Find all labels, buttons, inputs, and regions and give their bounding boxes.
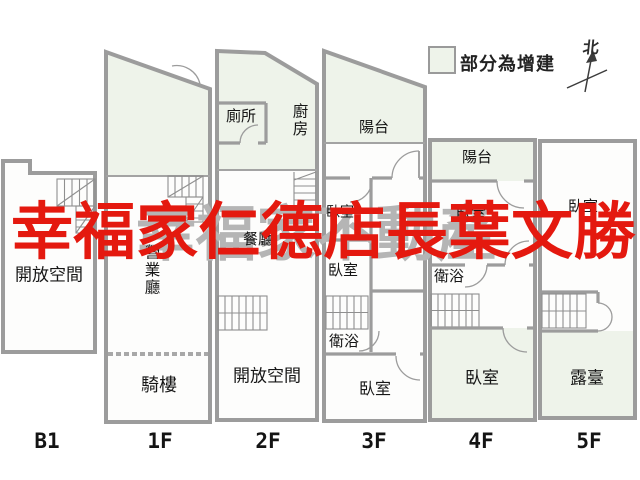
floor-label-5f: 5F [576, 429, 601, 453]
room-label: 騎樓 [141, 376, 177, 396]
room-label: 廚房 [290, 103, 307, 138]
room-label: 陽台 [462, 150, 492, 167]
room-label: 衛浴 [434, 269, 464, 286]
floor-label-b1: B1 [34, 429, 59, 453]
floor-label-3f: 3F [361, 429, 386, 453]
floorplan-canvas: 部分為增建 北 幸福家不動產 幸福家仁德店長葉文勝 開放空間 營業廳 騎樓 廁所… [0, 0, 640, 480]
agent-watermark: 幸福家仁德店長葉文勝 [11, 200, 636, 265]
room-label: 開放空間 [15, 267, 83, 286]
legend-addition-label: 部分為增建 [460, 50, 555, 76]
room-label: 露臺 [570, 370, 604, 389]
floor-label-2f: 2F [255, 429, 280, 453]
legend [429, 47, 455, 73]
room-label: 臥室 [465, 370, 499, 389]
room-label: 衛浴 [329, 334, 359, 351]
floor-label-1f: 1F [147, 429, 172, 453]
north-label: 北 [582, 34, 601, 58]
addition-swatch [429, 47, 455, 73]
room-label: 臥室 [359, 381, 391, 399]
room-label: 開放空間 [233, 368, 301, 387]
floor-label-4f: 4F [468, 429, 493, 453]
room-label: 廁所 [226, 109, 256, 126]
room-label: 陽台 [359, 120, 389, 137]
